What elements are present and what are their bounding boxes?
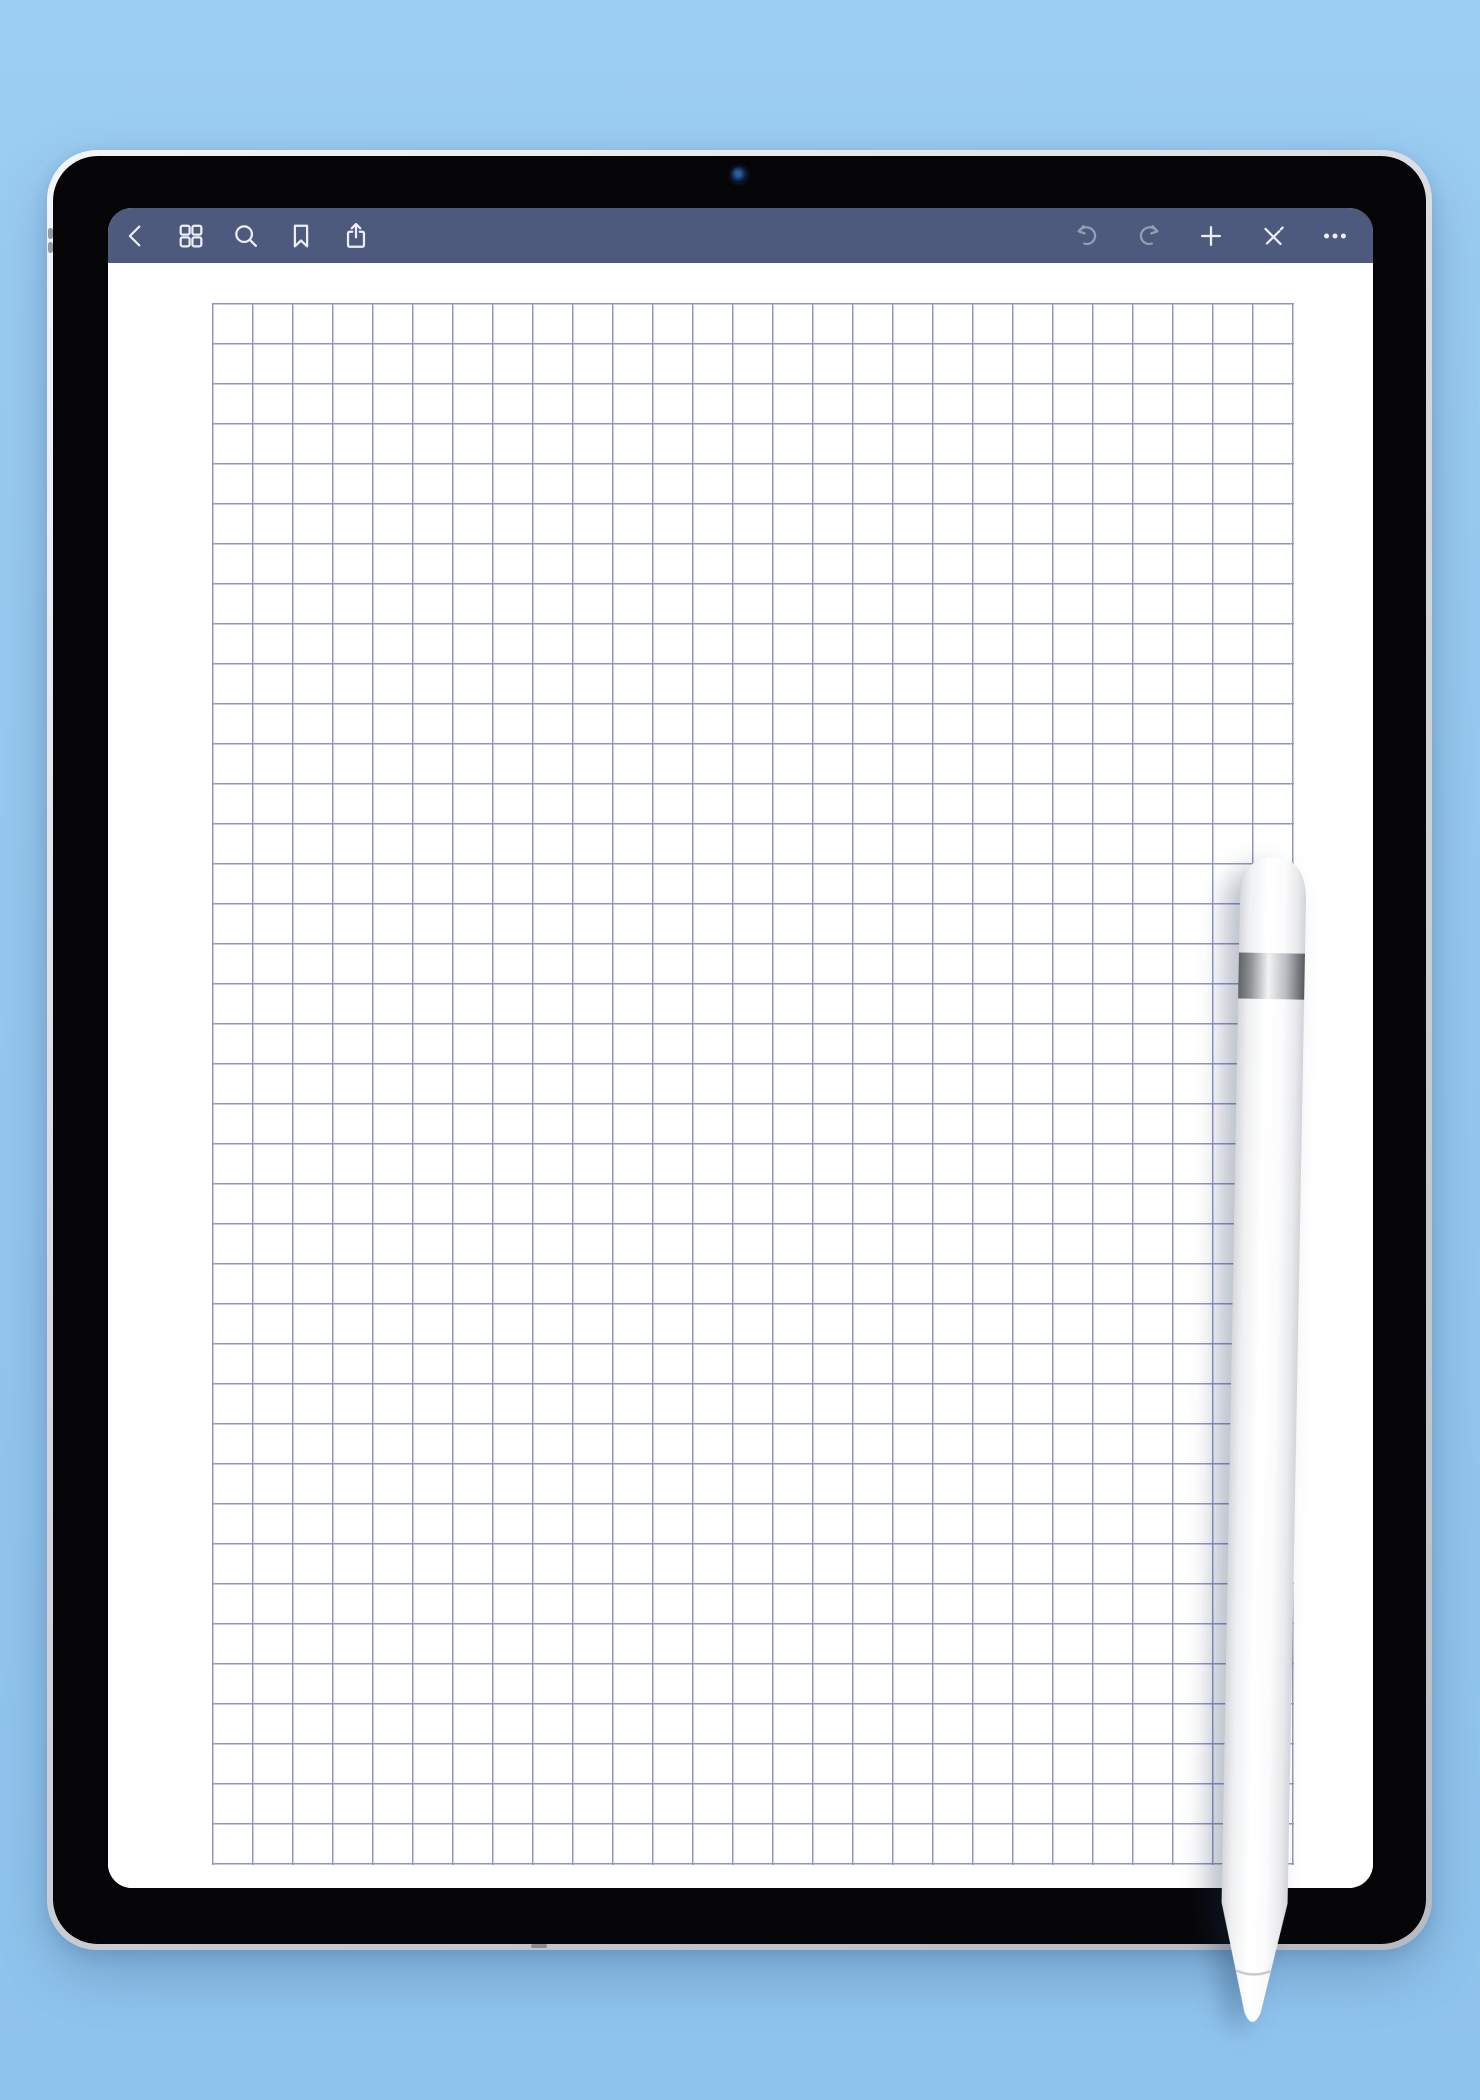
undo-button[interactable] [1067,216,1107,256]
back-button[interactable] [116,216,156,256]
bookmark-button[interactable] [281,216,321,256]
back-icon [121,221,151,251]
scene-background [0,0,1480,2100]
note-page-canvas[interactable] [108,263,1373,1888]
share-button[interactable] [336,216,376,256]
redo-button[interactable] [1129,216,1169,256]
edit-mode-button[interactable] [1253,216,1293,256]
search-button[interactable] [226,216,266,256]
add-icon [1196,221,1226,251]
more-icon [1320,221,1350,251]
more-options-button[interactable] [1315,216,1355,256]
toolbar-right-group [1067,216,1355,256]
volume-button-up [48,228,53,239]
app-toolbar [108,208,1373,263]
redo-icon [1134,221,1164,251]
pencil-cross-icon [1258,221,1288,251]
bookmark-icon [286,221,316,251]
undo-icon [1072,221,1102,251]
pages-overview-button[interactable] [171,216,211,256]
pages-grid-icon [176,221,206,251]
front-camera [731,167,747,183]
pencil-band [1238,952,1305,999]
share-icon [341,221,371,251]
volume-button-down [48,242,53,253]
graph-paper-grid [212,303,1294,1865]
add-page-button[interactable] [1191,216,1231,256]
toolbar-left-group [116,216,376,256]
tablet-screen [108,208,1373,1888]
search-icon [231,221,261,251]
connector-mark [531,1944,547,1948]
